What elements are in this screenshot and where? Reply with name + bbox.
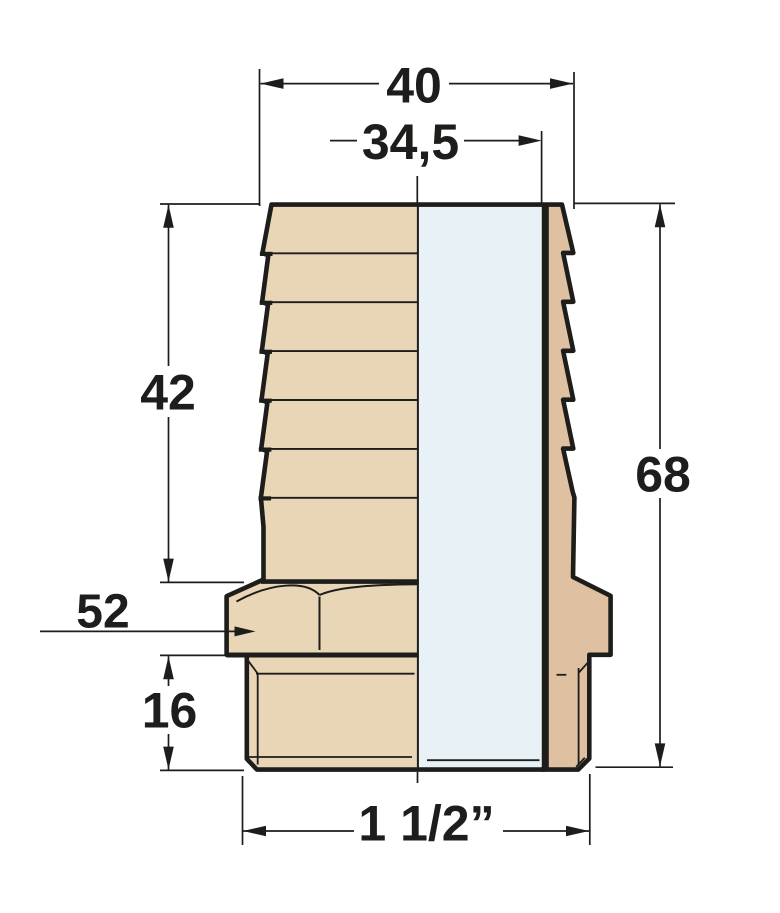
svg-text:34,5: 34,5 (362, 114, 459, 170)
svg-text:1 1/2”: 1 1/2” (358, 796, 494, 852)
svg-text:16: 16 (142, 683, 198, 739)
svg-text:40: 40 (386, 58, 442, 114)
svg-text:52: 52 (76, 586, 129, 639)
svg-text:42: 42 (140, 365, 196, 421)
svg-text:68: 68 (635, 447, 691, 503)
